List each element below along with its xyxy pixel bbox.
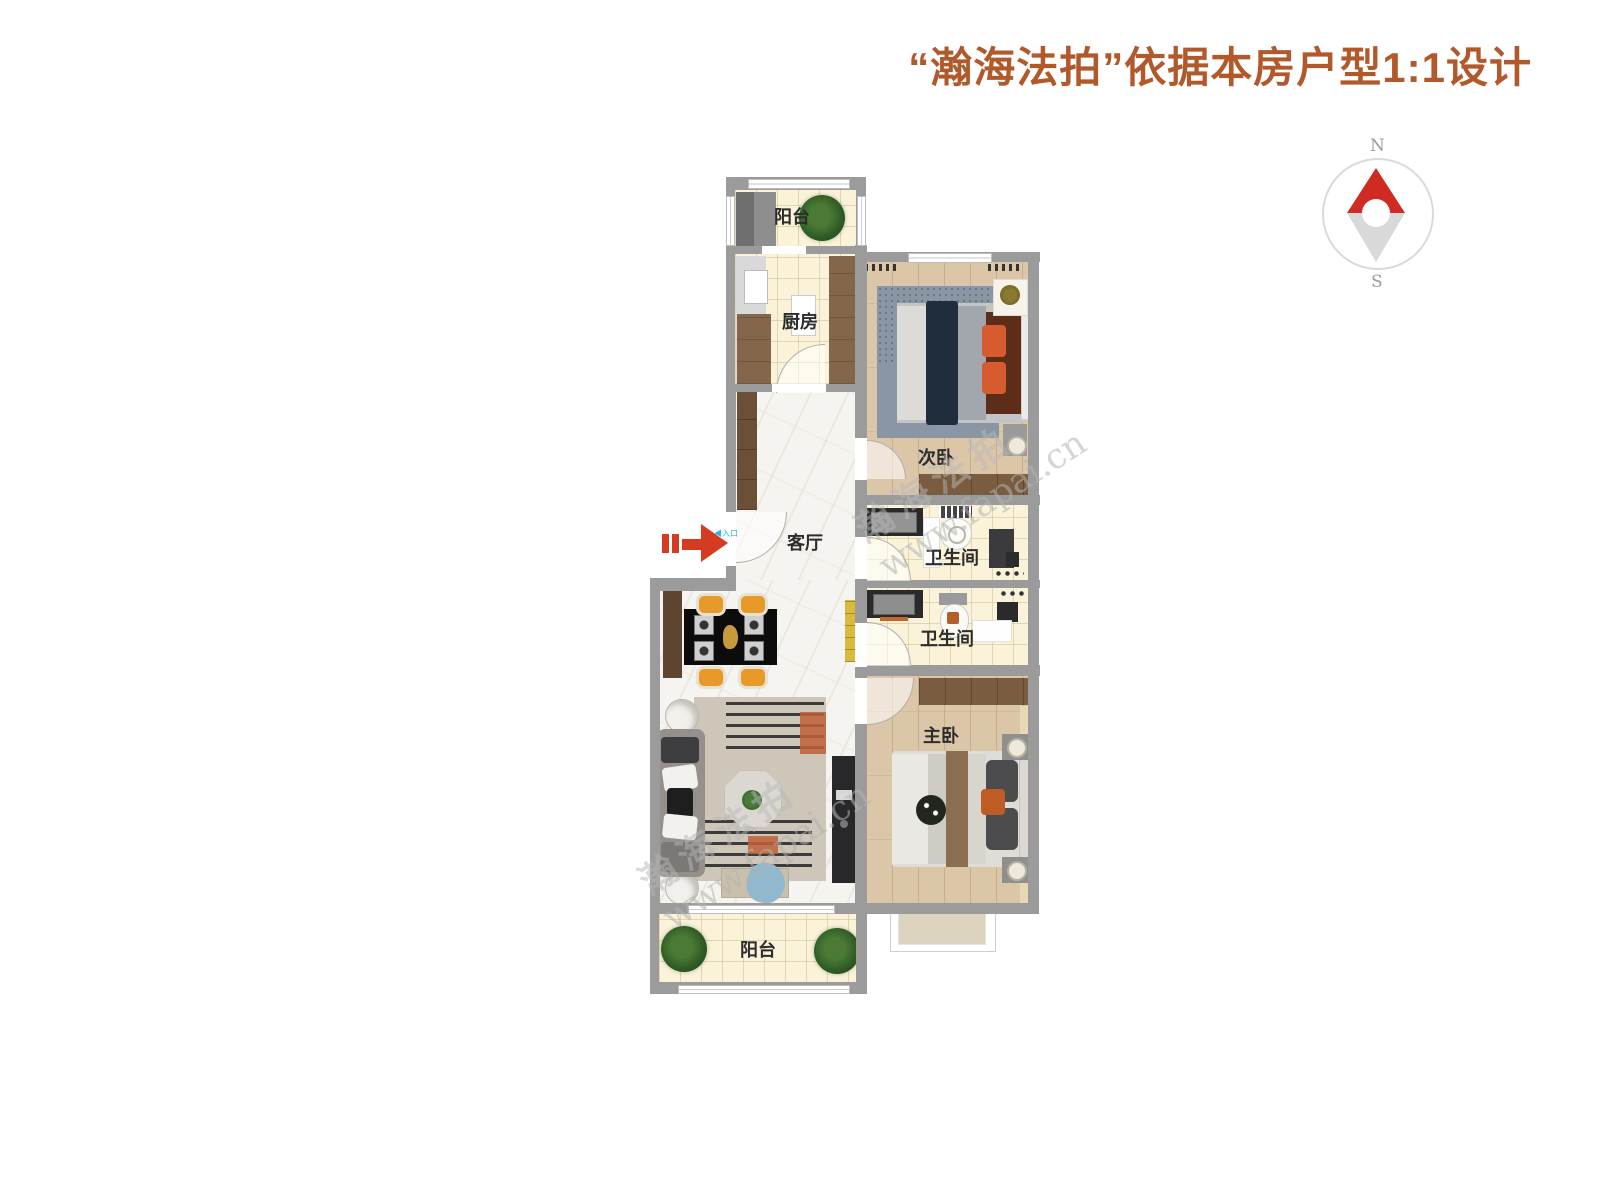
dining-sideboard: [663, 591, 682, 678]
room-label-kitchen: 厨房: [782, 308, 818, 334]
kitchen-cabinet-right: [829, 256, 855, 384]
orange-pillow: [982, 325, 1006, 357]
room-label-bathroom-bottom: 卫生间: [920, 625, 974, 651]
washer-box: [997, 602, 1018, 622]
hallway-cabinet: [737, 391, 757, 510]
sofa-seat: [661, 842, 699, 872]
table-lamp-icon: [1007, 436, 1027, 456]
kitchen-cabinet-left: [737, 314, 771, 384]
tv-console-item: [836, 790, 852, 800]
toilet-bowl: [948, 526, 966, 544]
door-opening: [855, 623, 867, 667]
wall: [726, 392, 736, 512]
page: { "title": { "text": "“瀚海法拍”依据本房户型1:1设计"…: [0, 0, 1600, 1200]
entrance-marker-icon: ◀: [714, 529, 722, 538]
dining-chair: [738, 666, 768, 689]
room-label-living: 客厅: [787, 529, 823, 555]
window: [857, 196, 866, 246]
wall: [855, 665, 1040, 676]
room-label-bathroom-top: 卫生间: [925, 544, 979, 570]
wall: [856, 903, 867, 994]
room-label-balcony-top: 阳台: [774, 203, 810, 229]
entry-arrow-bar-icon: [672, 534, 679, 553]
bathroom-bottom-sink: [873, 594, 915, 615]
window: [748, 179, 850, 189]
toilet-tank: [939, 506, 972, 518]
wall: [855, 495, 1040, 505]
room-label-second-bedroom: 次卧: [918, 444, 954, 470]
dining-chair: [696, 666, 726, 689]
second-bed-navy-runner: [926, 301, 958, 425]
entrance-label: ◀入口: [714, 528, 738, 539]
door-opening: [855, 438, 867, 480]
bathroom-top-stool: [1006, 552, 1019, 567]
sofa-cushion-dark: [661, 737, 699, 763]
entry-arrow-bar-icon: [662, 534, 669, 553]
bay-window-sill: [898, 910, 986, 945]
second-bed-sheet: [897, 306, 927, 420]
dining-chair: [696, 593, 726, 616]
sofa-pillow-white: [662, 813, 698, 840]
door-opening: [855, 537, 867, 579]
bath-mat: [972, 620, 1012, 642]
place-setting: [694, 641, 714, 661]
small-plant-icon: [1000, 285, 1020, 305]
place-setting: [744, 641, 764, 661]
compass-hub-icon: [1362, 199, 1390, 227]
orange-pillow: [981, 789, 1005, 815]
shower-fitting-icon: [999, 589, 1025, 599]
master-wardrobe: [919, 678, 1028, 705]
wall: [855, 580, 1040, 588]
place-setting: [694, 615, 714, 635]
rug-orange-patch: [748, 836, 778, 854]
towel: [880, 617, 908, 621]
wall: [650, 578, 736, 591]
curtain-decor: [988, 264, 1022, 271]
door-opening: [772, 384, 826, 392]
page-title: “瀚海法拍”依据本房户型1:1设计: [908, 34, 1532, 95]
window: [726, 196, 735, 246]
wall: [866, 903, 1039, 914]
tv-console-item: [840, 820, 848, 828]
toilet-accessory: [947, 612, 959, 624]
compass-south-label: S: [1371, 272, 1383, 292]
orange-pillow: [982, 362, 1006, 394]
door-opening: [762, 246, 806, 254]
bed-tray: [916, 795, 946, 825]
side-table-round: [665, 699, 699, 733]
window: [688, 905, 835, 914]
table-lamp-icon: [1007, 861, 1027, 881]
entrance-text: 入口: [722, 529, 738, 538]
table-centerpiece: [723, 625, 738, 649]
compass-north-label: N: [1370, 136, 1385, 156]
dining-chair: [738, 593, 768, 616]
coffee-table-plant-icon: [742, 790, 762, 810]
rug-orange-patch: [800, 712, 826, 754]
window: [908, 253, 992, 263]
place-setting: [744, 615, 764, 635]
bathroom-top-sink: [871, 512, 917, 533]
table-lamp-icon: [1007, 738, 1027, 758]
window: [678, 985, 850, 994]
wall: [650, 590, 660, 905]
master-bed-brown-runner: [946, 751, 968, 867]
room-label-balcony-bottom: 阳台: [740, 936, 776, 962]
door-opening: [855, 678, 867, 724]
wall: [726, 254, 735, 392]
balcony-cabinet: [736, 192, 776, 252]
potted-plant-icon: [661, 926, 707, 972]
entry-arrow-body-icon: [682, 539, 701, 550]
refrigerator: [744, 270, 768, 304]
room-label-master-bedroom: 主卧: [923, 722, 959, 748]
potted-plant-icon: [814, 928, 860, 974]
curtain-decor: [865, 264, 899, 271]
